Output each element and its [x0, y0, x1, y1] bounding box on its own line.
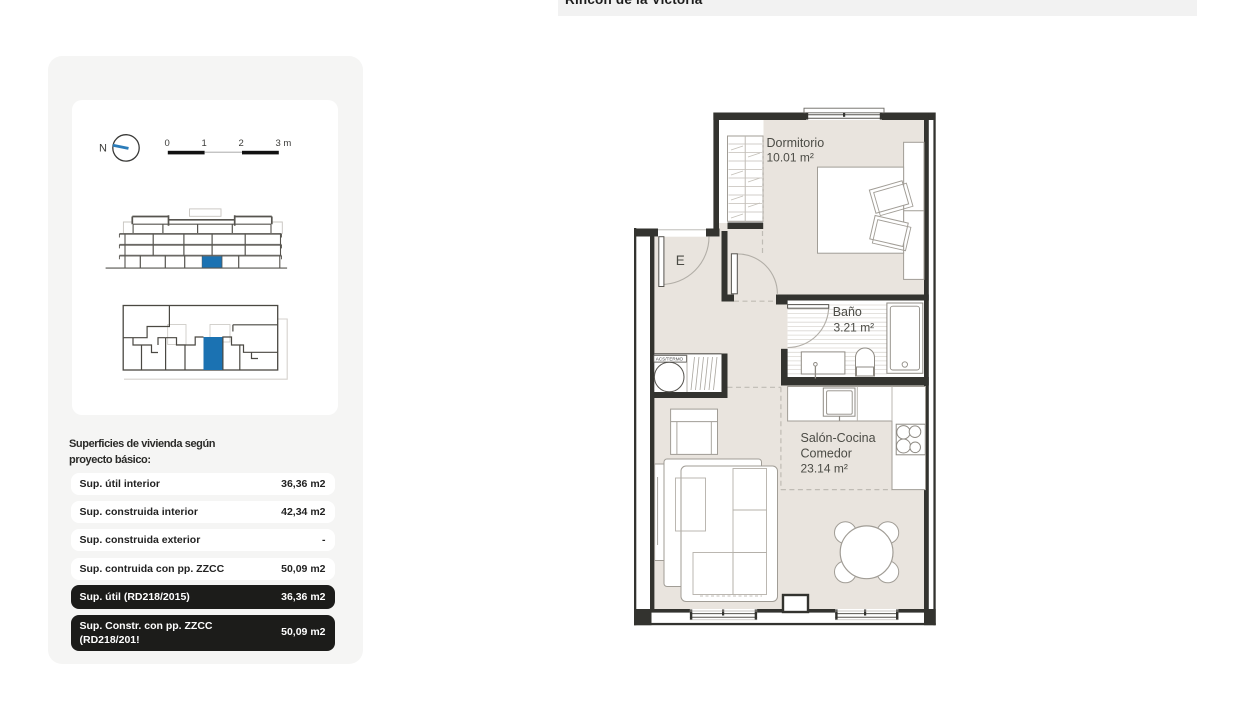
svg-text:Salón-Cocina: Salón-Cocina	[801, 431, 876, 445]
svg-text:Comedor: Comedor	[801, 447, 852, 461]
svg-text:2: 2	[239, 138, 244, 149]
svg-text:Baño: Baño	[833, 305, 862, 319]
svg-text:10.01 m²: 10.01 m²	[767, 151, 814, 165]
svg-text:ACS/TERMO: ACS/TERMO	[656, 357, 684, 362]
svg-text:0: 0	[165, 138, 170, 149]
svg-text:3.21 m²: 3.21 m²	[834, 321, 875, 335]
svg-text:N: N	[99, 143, 107, 155]
svg-text:3 m: 3 m	[276, 138, 292, 149]
svg-text:Dormitorio: Dormitorio	[767, 136, 825, 150]
svg-text:1: 1	[202, 138, 207, 149]
svg-text:23.14 m²: 23.14 m²	[801, 462, 848, 476]
svg-text:E: E	[676, 253, 685, 268]
